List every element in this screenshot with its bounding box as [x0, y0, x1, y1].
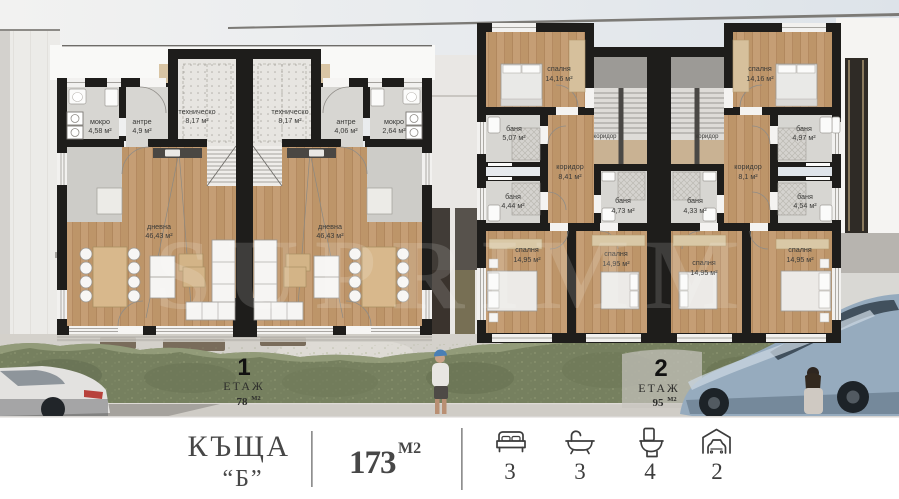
svg-text:5,07 м²: 5,07 м²	[502, 133, 526, 142]
svg-text:95: 95	[653, 397, 665, 409]
svg-text:мокро: мокро	[90, 117, 110, 126]
svg-text:SUPRIMM: SUPRIMM	[155, 219, 756, 330]
svg-text:4,06 м²: 4,06 м²	[334, 126, 358, 135]
svg-text:ЕТАЖ: ЕТАЖ	[223, 379, 264, 393]
svg-text:мокро: мокро	[384, 117, 404, 126]
svg-text:баня: баня	[506, 124, 522, 133]
svg-text:8,1 м²: 8,1 м²	[738, 172, 758, 181]
svg-text:4: 4	[644, 459, 656, 484]
svg-text:14,16 м²: 14,16 м²	[746, 74, 774, 83]
svg-text:М2: М2	[667, 396, 676, 403]
svg-text:коридор: коридор	[734, 162, 761, 171]
svg-text:14,16 м²: 14,16 м²	[545, 74, 573, 83]
svg-text:КЪЩА: КЪЩА	[187, 430, 290, 463]
svg-text:баня: баня	[796, 124, 812, 133]
svg-text:“Б”: “Б”	[222, 466, 263, 492]
svg-text:2: 2	[654, 355, 667, 382]
svg-text:ЕТАЖ: ЕТАЖ	[638, 381, 679, 395]
svg-text:2: 2	[711, 459, 723, 484]
svg-text:спалня: спалня	[547, 64, 571, 73]
svg-text:1: 1	[237, 354, 250, 381]
svg-text:4,33 м²: 4,33 м²	[683, 206, 707, 215]
svg-text:4,73 м²: 4,73 м²	[611, 206, 635, 215]
svg-text:М2: М2	[251, 395, 260, 402]
svg-text:8,17 м²: 8,17 м²	[185, 116, 209, 125]
svg-text:коридор: коридор	[594, 134, 618, 140]
svg-text:4,9 м²: 4,9 м²	[132, 126, 152, 135]
svg-text:2,64 м²: 2,64 м²	[382, 126, 406, 135]
svg-text:3: 3	[574, 459, 586, 484]
svg-text:баня: баня	[797, 192, 813, 201]
svg-text:3: 3	[504, 459, 516, 484]
svg-text:4,44 м²: 4,44 м²	[501, 201, 525, 210]
svg-text:4,97 м²: 4,97 м²	[792, 133, 816, 142]
svg-text:коридор: коридор	[696, 134, 720, 140]
svg-text:173: 173	[349, 445, 396, 481]
svg-text:14,95 м²: 14,95 м²	[786, 255, 814, 264]
svg-text:баня: баня	[687, 196, 703, 205]
svg-text:коридор: коридор	[556, 162, 583, 171]
svg-text:техническо: техническо	[271, 107, 308, 116]
svg-text:спалня: спалня	[748, 64, 772, 73]
svg-text:8,41 м²: 8,41 м²	[558, 172, 582, 181]
svg-text:антре: антре	[132, 117, 151, 126]
svg-text:М2: М2	[398, 440, 421, 457]
svg-text:4,54 м²: 4,54 м²	[793, 201, 817, 210]
svg-text:антре: антре	[336, 117, 355, 126]
svg-text:4,58 м²: 4,58 м²	[88, 126, 112, 135]
svg-text:техническо: техническо	[178, 107, 215, 116]
svg-text:спалня: спалня	[788, 245, 812, 254]
svg-text:баня: баня	[505, 192, 521, 201]
svg-text:78: 78	[237, 396, 249, 408]
svg-text:баня: баня	[615, 196, 631, 205]
svg-text:8,17 м²: 8,17 м²	[278, 116, 302, 125]
